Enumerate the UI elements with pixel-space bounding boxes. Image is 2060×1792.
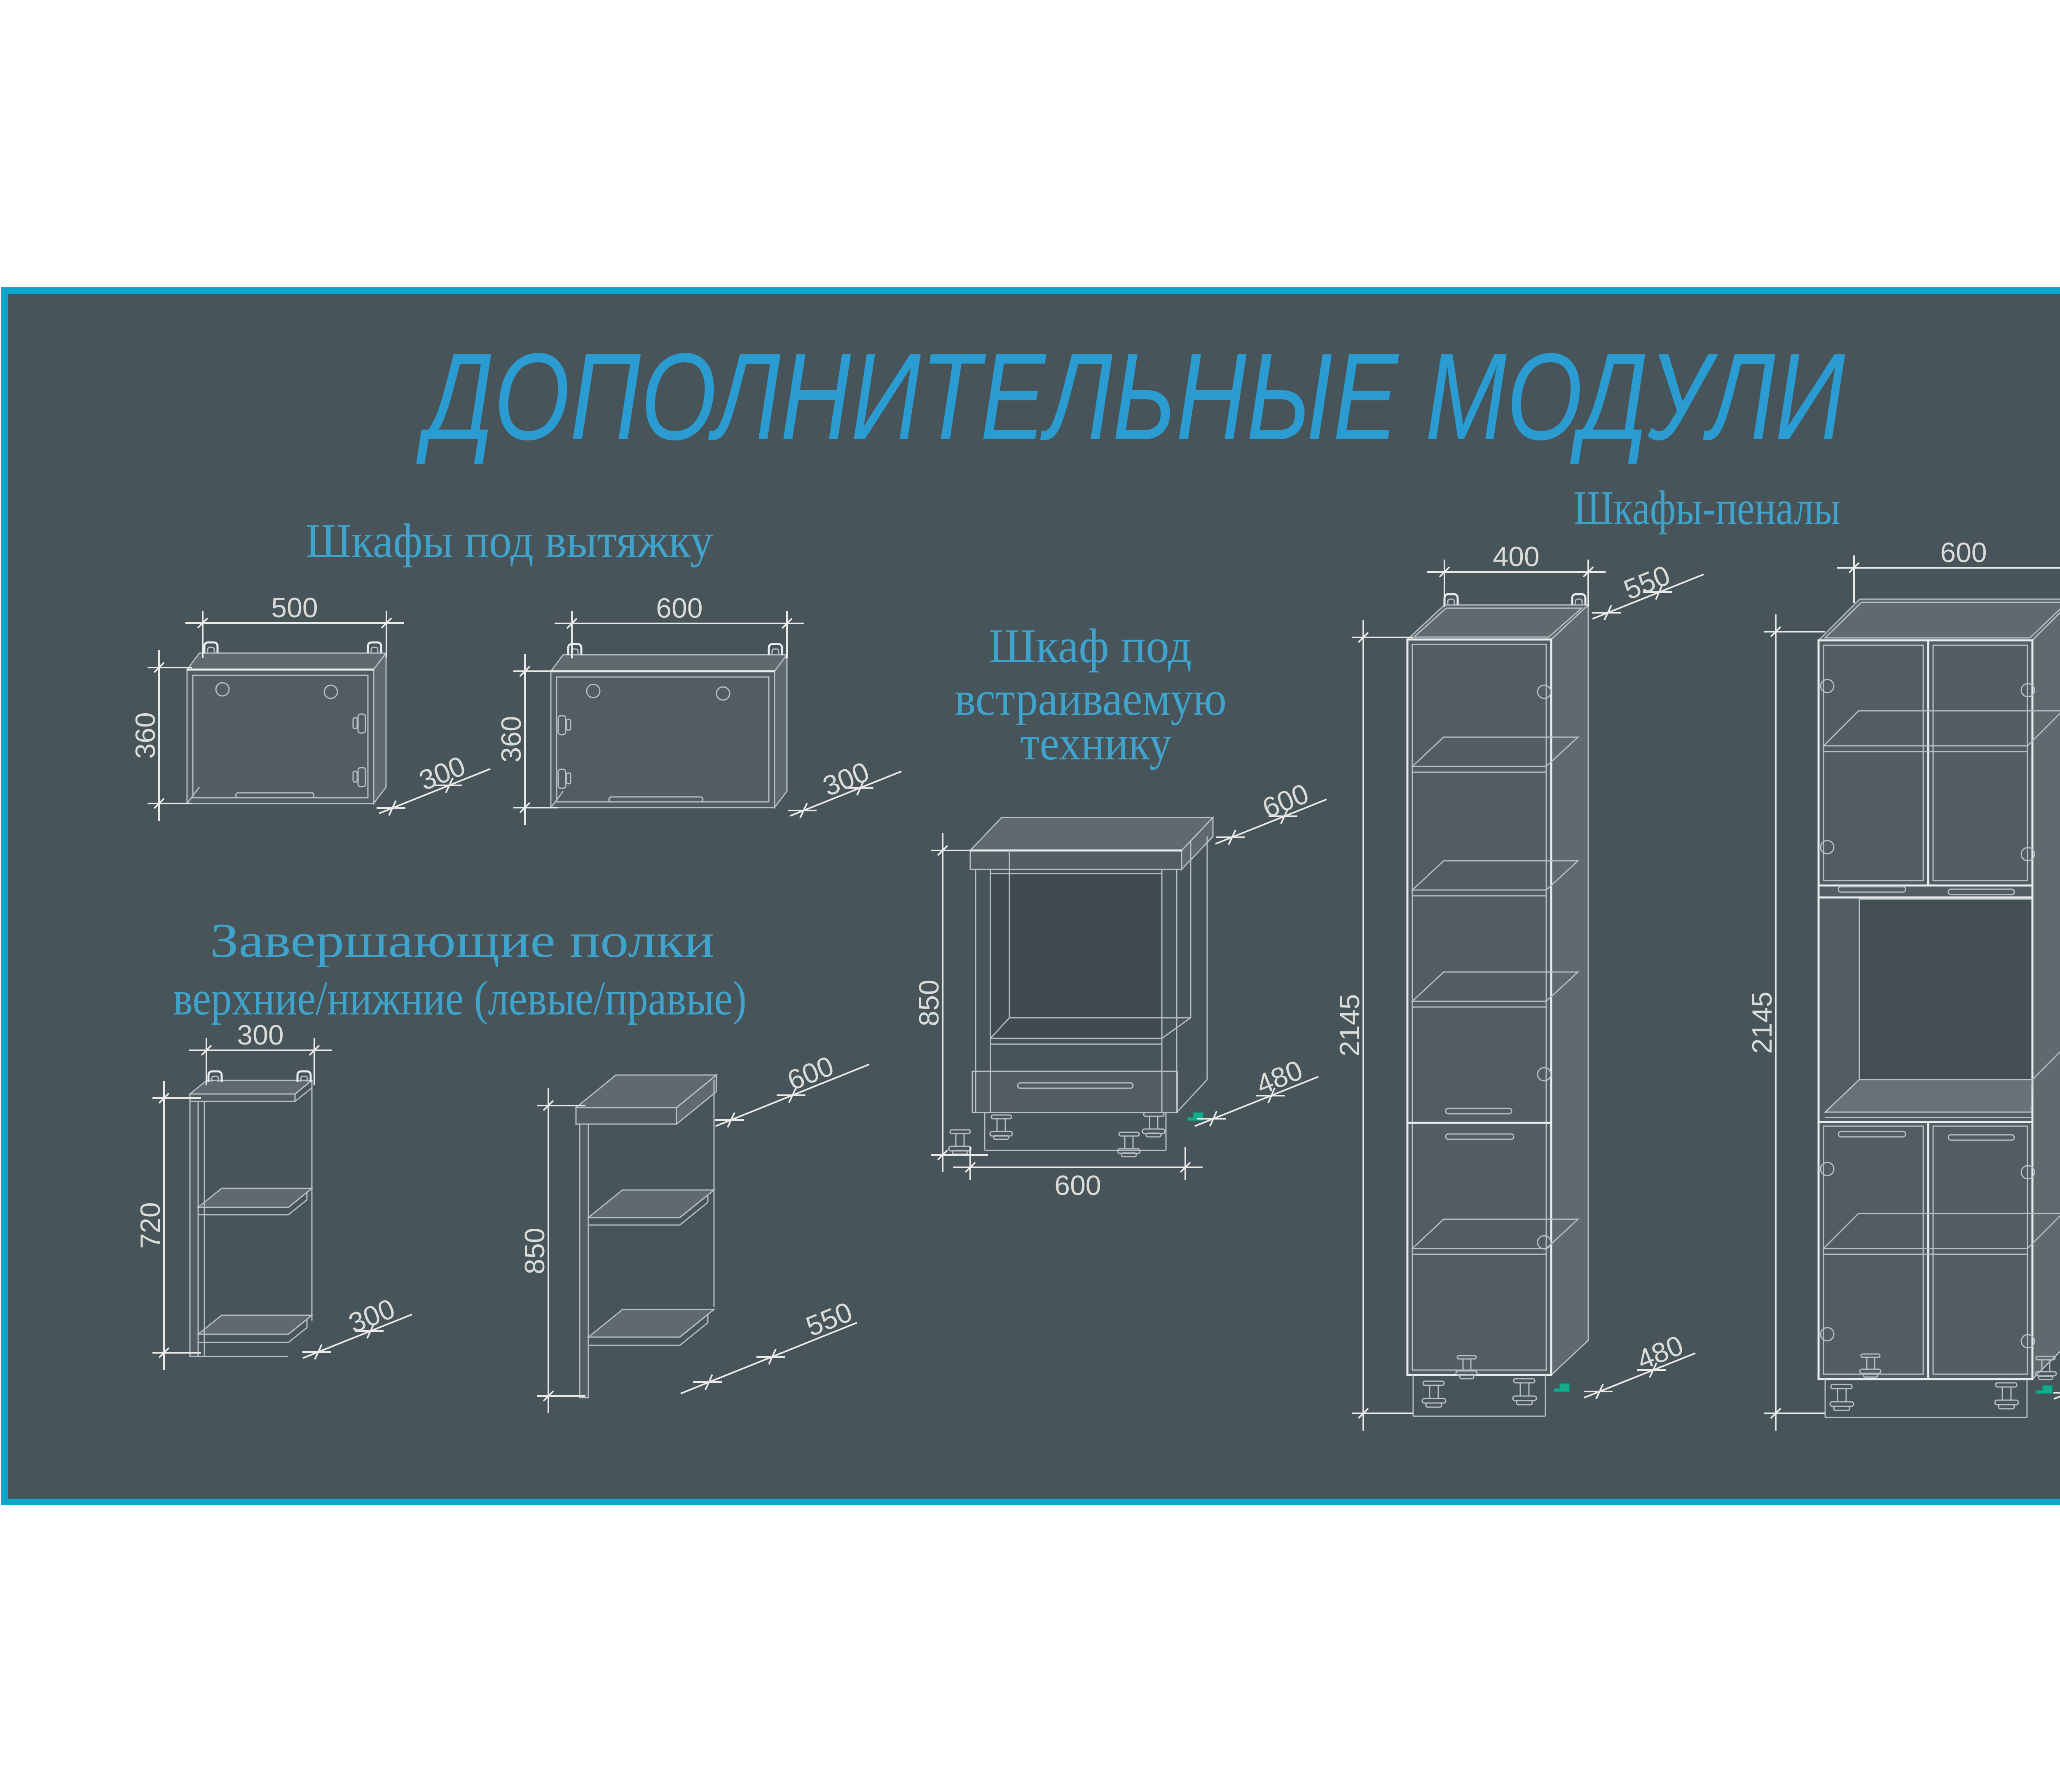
svg-text:850: 850 — [519, 1227, 550, 1274]
svg-text:600: 600 — [1940, 537, 1987, 568]
svg-text:360: 360 — [496, 716, 527, 762]
svg-text:400: 400 — [1493, 541, 1539, 572]
svg-text:360: 360 — [130, 712, 161, 759]
svg-text:2145: 2145 — [1746, 991, 1778, 1054]
svg-text:Завершающие полки: Завершающие полки — [210, 914, 714, 967]
svg-text:720: 720 — [135, 1202, 166, 1249]
svg-text:верхние/нижние (левые/правые): верхние/нижние (левые/правые) — [173, 971, 747, 1025]
svg-text:600: 600 — [1054, 1170, 1101, 1201]
svg-text:850: 850 — [913, 979, 945, 1026]
svg-text:Шкафы-пеналы: Шкафы-пеналы — [1573, 481, 1840, 535]
svg-text:Шкафы под вытяжку: Шкафы под вытяжку — [306, 514, 713, 568]
svg-text:Шкаф под: Шкаф под — [989, 619, 1192, 673]
svg-text:500: 500 — [271, 592, 318, 623]
svg-text:ДОПОЛНИТЕЛЬНЫЕ МОДУЛИ: ДОПОЛНИТЕЛЬНЫЕ МОДУЛИ — [416, 327, 1845, 466]
svg-text:2145: 2145 — [1334, 994, 1365, 1056]
svg-text:технику: технику — [1021, 716, 1172, 770]
svg-text:600: 600 — [656, 593, 702, 624]
svg-text:300: 300 — [237, 1019, 283, 1051]
